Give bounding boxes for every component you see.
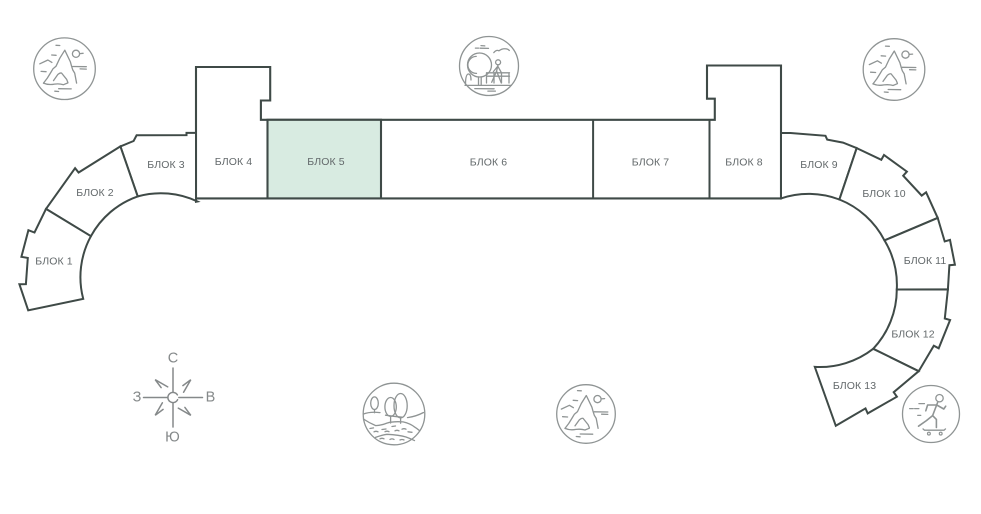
svg-text:БЛОК 9: БЛОК 9 xyxy=(800,159,837,171)
svg-text:БЛОК 10: БЛОК 10 xyxy=(862,188,905,200)
svg-text:БЛОК 12: БЛОК 12 xyxy=(891,329,934,341)
svg-text:БЛОК 4: БЛОК 4 xyxy=(215,156,252,168)
svg-text:БЛОК 11: БЛОК 11 xyxy=(904,255,947,267)
svg-text:БЛОК 2: БЛОК 2 xyxy=(76,187,113,199)
svg-text:БЛОК 13: БЛОК 13 xyxy=(833,380,876,392)
svg-text:БЛОК 3: БЛОК 3 xyxy=(147,159,184,171)
svg-text:З: З xyxy=(133,390,142,406)
svg-text:БЛОК 7: БЛОК 7 xyxy=(632,157,669,169)
svg-text:В: В xyxy=(206,390,216,406)
svg-text:БЛОК 8: БЛОК 8 xyxy=(725,157,762,169)
svg-text:БЛОК 6: БЛОК 6 xyxy=(470,157,507,169)
svg-text:БЛОК 5: БЛОК 5 xyxy=(307,156,344,168)
svg-text:БЛОК 1: БЛОК 1 xyxy=(35,256,72,268)
svg-text:Ю: Ю xyxy=(165,430,180,446)
svg-text:С: С xyxy=(168,351,178,367)
